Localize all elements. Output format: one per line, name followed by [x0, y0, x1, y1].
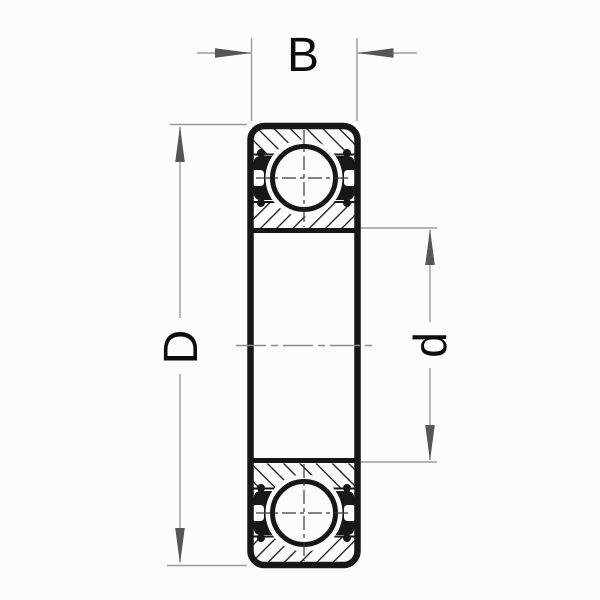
arrowhead-down-icon: [425, 425, 435, 461]
arrowhead-down-icon: [175, 528, 185, 564]
seal-anchor-dot: [343, 149, 351, 157]
bearing-diagram: B D d: [0, 0, 600, 600]
seal-anchor-dot: [343, 484, 351, 492]
technical-drawing-canvas: B D d: [0, 0, 600, 600]
label-outer-diameter-D: D: [155, 330, 208, 365]
arrowhead-up-icon: [425, 229, 435, 265]
seal-anchor-dot: [343, 199, 351, 207]
label-width-B: B: [287, 29, 319, 82]
seal-anchor-dot: [257, 484, 265, 492]
arrowhead-right-icon: [215, 48, 252, 58]
bottom-ring-section: [252, 464, 356, 563]
top-ring-section: [252, 129, 356, 228]
arrowhead-up-icon: [175, 126, 185, 162]
dimension-outer-diameter-D: D: [155, 125, 247, 566]
dimension-bore-d: d: [358, 228, 456, 462]
arrowhead-left-icon: [357, 48, 394, 58]
label-bore-d: d: [404, 332, 456, 358]
dimension-width-B: B: [197, 29, 417, 121]
seal-anchor-dot: [257, 199, 265, 207]
seal-anchor-dot: [257, 149, 265, 157]
seal-anchor-dot: [257, 534, 265, 542]
seal-anchor-dot: [343, 534, 351, 542]
